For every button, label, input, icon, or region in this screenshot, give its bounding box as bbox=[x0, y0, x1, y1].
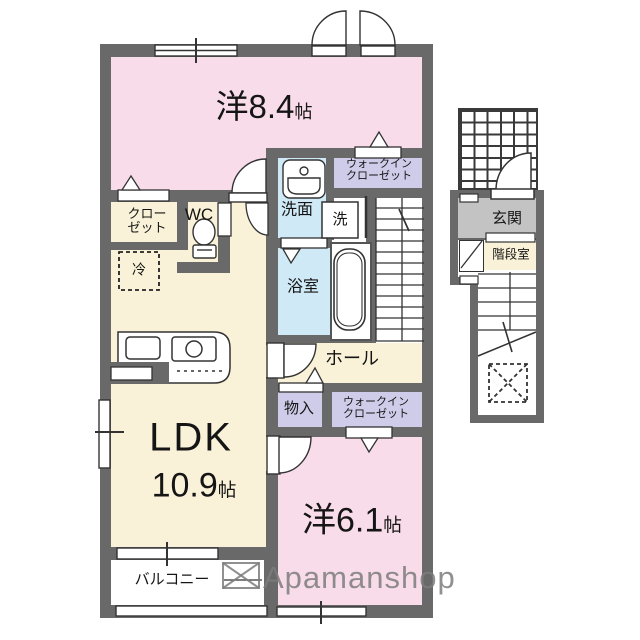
label-line: クローゼット bbox=[343, 409, 409, 421]
bathtub-icon bbox=[334, 249, 365, 330]
room-label-closet: クローゼット bbox=[127, 207, 166, 235]
room-label-walkin-closet-1: ウォークインクローゼット bbox=[346, 159, 412, 183]
room-size: 10.9 bbox=[152, 467, 218, 505]
window bbox=[155, 38, 237, 63]
room-label-walkin-closet-2: ウォークインクローゼット bbox=[343, 397, 409, 421]
room-label-storage: 物入 bbox=[284, 401, 314, 417]
room-label-western-8-4: 洋8.4帖 bbox=[215, 89, 312, 125]
washbasin-icon bbox=[283, 160, 325, 198]
closet-folding-door bbox=[355, 132, 401, 158]
kitchen-sink-icon bbox=[126, 337, 160, 359]
window bbox=[117, 542, 218, 566]
closet-folding-door bbox=[346, 427, 392, 452]
door-arc bbox=[229, 159, 267, 202]
room-name: 洋8.4 bbox=[215, 88, 294, 125]
room-label-ldk: LDK bbox=[149, 416, 233, 459]
window bbox=[460, 194, 535, 284]
room-label-genkan: 玄関 bbox=[492, 211, 522, 227]
room-name: 洋6.1 bbox=[302, 502, 383, 540]
apamanshop-logo-icon bbox=[223, 563, 259, 588]
room-label-kaidanshitsu: 階段室 bbox=[492, 248, 530, 262]
staircase-main bbox=[366, 196, 424, 341]
watermark-brand: Apamanshop bbox=[263, 560, 456, 596]
room-unit: 帖 bbox=[294, 102, 312, 122]
refrigerator-label: 冷 bbox=[132, 262, 146, 277]
room-label-hall: ホール bbox=[325, 349, 379, 368]
double-swing-doors bbox=[312, 11, 395, 56]
room-label-balcony: バルコニー bbox=[135, 572, 210, 588]
room-label-bathroom: 浴室 bbox=[287, 278, 319, 295]
staircase-annex bbox=[478, 272, 536, 402]
washing-machine-label: 洗 bbox=[332, 212, 347, 228]
shoe-cabinet-diagonal bbox=[461, 241, 482, 268]
label-line: クロー bbox=[127, 207, 166, 221]
toilet-icon bbox=[193, 219, 216, 258]
label-line: ゼット bbox=[127, 221, 166, 235]
floorplan-canvas: 洋8.4帖 ウォークインクローゼット クローゼット WC 冷 洗面 洗 浴室 ホ… bbox=[0, 0, 640, 640]
room-unit: 帖 bbox=[218, 480, 237, 501]
label-line: クローゼット bbox=[346, 171, 412, 183]
closet-folding-door bbox=[118, 176, 169, 201]
room-label-washroom: 洗面 bbox=[281, 201, 313, 218]
void-dashed-box bbox=[489, 364, 527, 402]
room-label-wc: WC bbox=[185, 206, 213, 224]
door-arc bbox=[218, 203, 268, 236]
window bbox=[95, 400, 124, 468]
entrance-door-arc bbox=[491, 153, 534, 199]
bathroom-door bbox=[281, 238, 327, 263]
room-label-western-6-1: 洋6.1帖 bbox=[302, 503, 402, 540]
door-arc bbox=[267, 436, 311, 474]
door-arc bbox=[267, 343, 316, 378]
balcony-railing bbox=[116, 606, 267, 616]
room-unit: 帖 bbox=[383, 515, 402, 536]
floorplan-lineart bbox=[0, 0, 640, 640]
window bbox=[277, 601, 366, 624]
room-label-ldk-size: 10.9帖 bbox=[152, 468, 237, 505]
kitchen-cabinet bbox=[111, 367, 152, 380]
